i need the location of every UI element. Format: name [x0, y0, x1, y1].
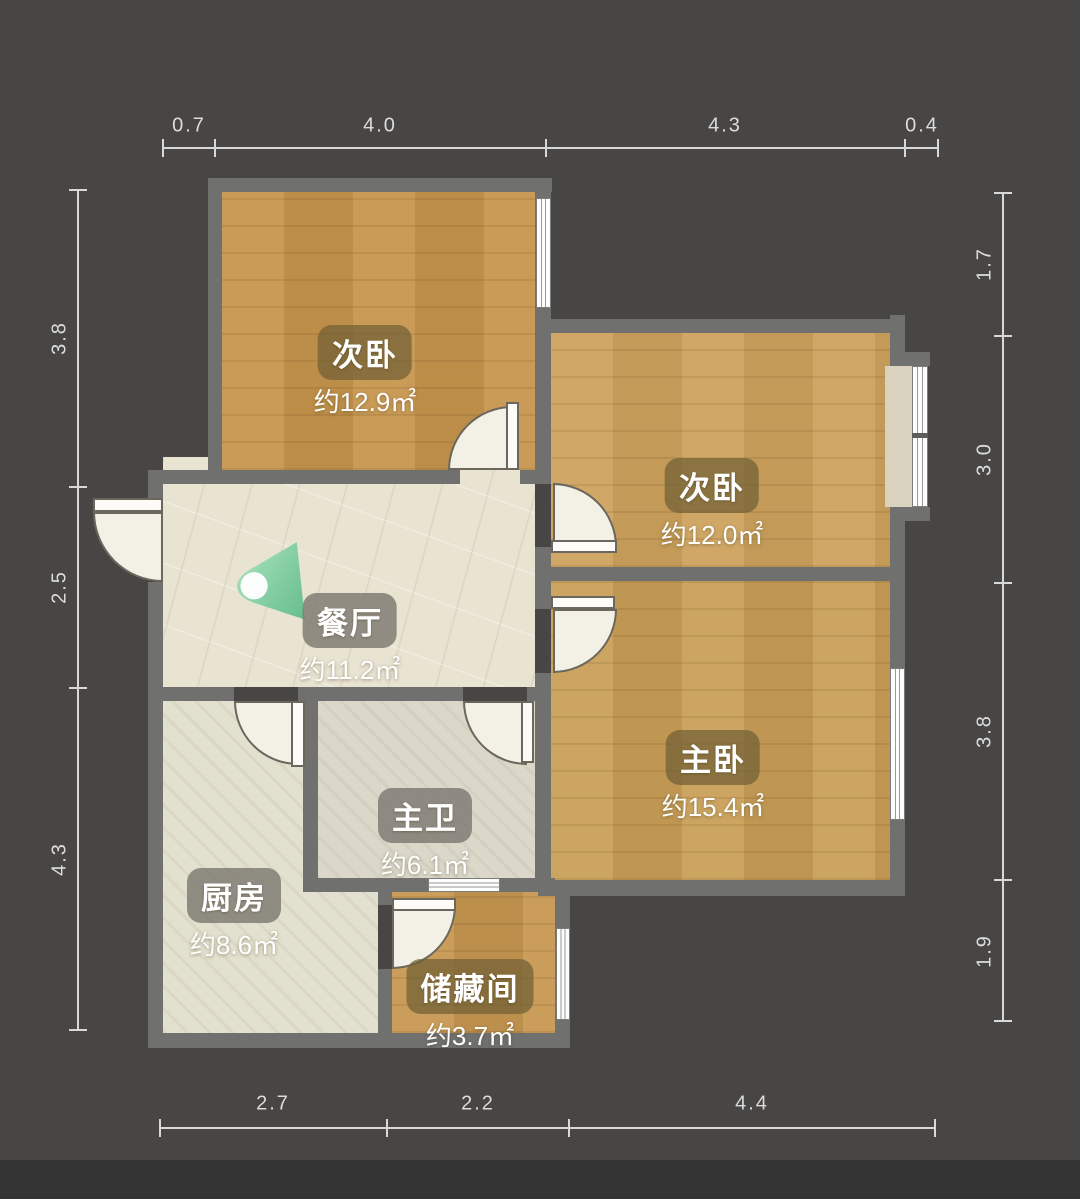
room-area-text: 约12.9㎡ — [314, 382, 417, 419]
dim-tick — [69, 1029, 87, 1031]
dim-line — [163, 147, 939, 149]
dim-label: 0.7 — [172, 115, 206, 138]
window-master-bedroom — [890, 668, 905, 820]
room-area-text: 约12.0㎡ — [661, 515, 764, 552]
room-name-badge: 次卧 — [318, 325, 412, 380]
room-label-kitchen: 厨房 约8.6㎡ — [187, 868, 281, 962]
dim-label: 3.0 — [974, 442, 997, 476]
room-label-bedroom-top-right: 次卧 约12.0㎡ — [661, 458, 764, 552]
room-name-badge: 次卧 — [665, 458, 759, 513]
dim-label: 4.3 — [708, 115, 742, 138]
dim-tick — [994, 1020, 1012, 1022]
bedroom-top-left-door-leaf — [506, 402, 519, 470]
dim-tick — [568, 1119, 570, 1137]
room-label-bedroom-top-left: 次卧 约12.9㎡ — [314, 325, 417, 419]
dim-tick — [162, 139, 164, 157]
room-name-badge: 厨房 — [187, 868, 281, 923]
room-label-master-bathroom: 主卫 约6.1㎡ — [378, 788, 472, 882]
dim-line — [77, 190, 79, 1030]
room-area-text: 约11.2㎡ — [300, 650, 401, 687]
dim-tick — [69, 189, 87, 191]
dim-label: 3.8 — [974, 714, 997, 748]
room-area-text: 约15.4㎡ — [662, 787, 765, 824]
room-name-badge: 餐厅 — [303, 593, 397, 648]
wall — [378, 969, 392, 1033]
wall — [208, 470, 460, 484]
wall — [527, 687, 551, 701]
kitchen-door-leaf — [291, 701, 305, 767]
room-area-text: 约6.1㎡ — [381, 845, 469, 882]
wall — [535, 673, 551, 880]
dim-tick — [159, 1119, 161, 1137]
room-area-text: 约3.7㎡ — [426, 1016, 514, 1053]
entry-door-leaf — [93, 498, 163, 512]
bathroom-door-leaf — [521, 701, 534, 763]
dim-label: 2.5 — [49, 570, 72, 604]
dim-label: 4.4 — [735, 1093, 769, 1116]
room-name-badge: 主卫 — [378, 788, 472, 843]
dim-label: 3.8 — [49, 321, 72, 355]
room-label-dining-room: 餐厅 约11.2㎡ — [300, 593, 401, 687]
dim-tick — [994, 879, 1012, 881]
dim-label: 0.4 — [905, 115, 939, 138]
wall — [535, 567, 905, 581]
room-area-text: 约8.6㎡ — [190, 925, 278, 962]
dim-label: 4.0 — [363, 115, 397, 138]
window-mullion — [912, 433, 928, 438]
bay-window-wall — [890, 507, 930, 521]
wall — [298, 687, 463, 701]
wall — [208, 178, 222, 484]
dim-tick — [386, 1119, 388, 1137]
bay-window-sill — [885, 366, 912, 507]
dim-tick — [994, 192, 1012, 194]
window-storage-room — [556, 928, 570, 1020]
dim-label: 1.7 — [974, 247, 997, 281]
wall — [378, 878, 392, 905]
dim-line — [1002, 193, 1004, 1022]
dim-tick — [69, 486, 87, 488]
dim-label: 2.7 — [256, 1093, 290, 1116]
dim-tick — [69, 687, 87, 689]
wall — [520, 470, 551, 484]
wall — [535, 333, 551, 470]
dim-tick — [937, 139, 939, 157]
dim-tick — [904, 139, 906, 157]
room-label-storage-room: 储藏间 约3.7㎡ — [407, 959, 534, 1053]
floor-plan-canvas: 次卧 约12.9㎡ 次卧 约12.0㎡ 主卧 约15.4㎡ 餐厅 约11.2㎡ … — [0, 0, 1080, 1199]
wall — [163, 687, 234, 701]
dim-label: 2.2 — [461, 1093, 495, 1116]
room-name-badge: 主卧 — [666, 730, 760, 785]
wall — [535, 319, 905, 333]
dim-tick — [994, 335, 1012, 337]
wall — [303, 701, 318, 878]
master-bedroom-door-leaf — [551, 596, 615, 609]
dim-tick — [934, 1119, 936, 1137]
dim-tick — [214, 139, 216, 157]
dim-label: 4.3 — [49, 842, 72, 876]
wall — [890, 315, 905, 352]
dim-tick — [545, 139, 547, 157]
wall — [148, 582, 163, 1048]
storage-door-leaf — [392, 898, 456, 911]
wall — [208, 178, 552, 192]
room-label-master-bedroom: 主卧 约15.4㎡ — [662, 730, 765, 824]
dim-tick — [994, 582, 1012, 584]
entry-door-swing — [93, 512, 163, 582]
bay-window-wall — [890, 352, 930, 366]
wall — [538, 880, 905, 896]
dim-label: 1.9 — [974, 934, 997, 968]
window-bedroom-top-left — [536, 198, 551, 308]
bedroom-top-right-door-leaf — [551, 540, 617, 553]
dim-line — [160, 1127, 936, 1129]
room-name-badge: 储藏间 — [407, 959, 534, 1014]
